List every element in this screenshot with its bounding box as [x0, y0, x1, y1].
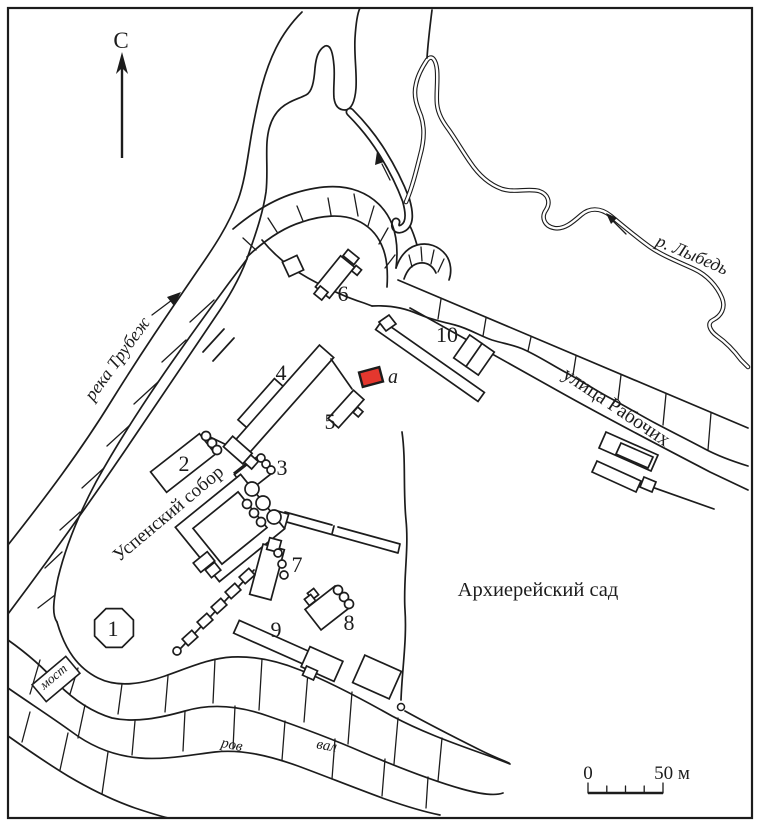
scale-end-label: 50 м	[654, 763, 690, 784]
building-7-number: 7	[292, 552, 303, 577]
building-4-number: 4	[276, 360, 287, 385]
building-2-number: 2	[179, 451, 190, 476]
building-6-number: 6	[338, 281, 349, 306]
scanned-map-page: С река Трубеж р. Лыбедь улица Рабочих Ус…	[0, 0, 760, 827]
building-10-number: 10	[436, 322, 458, 347]
building-9-number: 9	[271, 617, 282, 642]
site-plan-map: С река Трубеж р. Лыбедь улица Рабочих Ус…	[0, 0, 760, 827]
excavation-label: а	[388, 366, 398, 388]
building-8-number: 8	[344, 610, 355, 635]
building-1-number: 1	[108, 616, 119, 641]
scale-start-label: 0	[583, 763, 593, 784]
building-3-number: 3	[277, 455, 288, 480]
building-5-number: 5	[325, 409, 336, 434]
north-label: С	[113, 28, 128, 53]
garden-label: Архиерейский сад	[458, 579, 619, 601]
